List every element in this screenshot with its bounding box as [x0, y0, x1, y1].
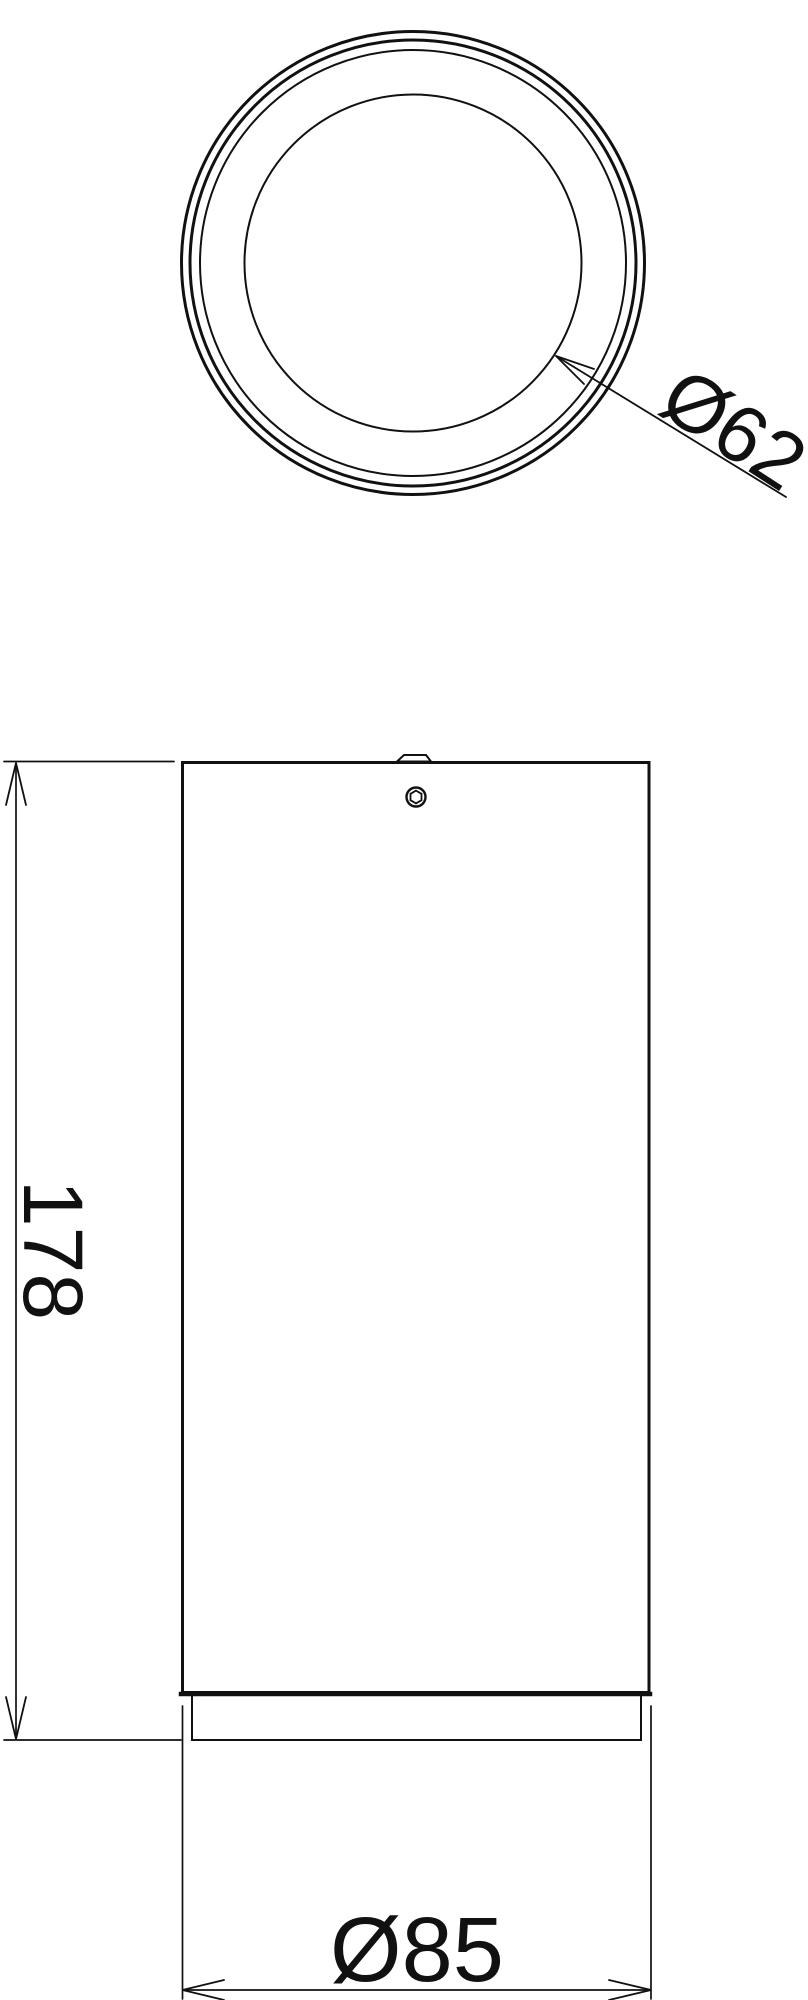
lens-diameter-label: Ø62	[646, 350, 808, 507]
outer-rim-circle	[182, 32, 645, 495]
lens-circle	[245, 95, 582, 432]
rim-circle-inner	[200, 50, 626, 476]
trim-ring	[192, 1697, 641, 1740]
body-outline	[183, 763, 650, 1693]
technical-drawing-sheet: Ø62 178	[0, 0, 808, 2000]
front-view	[181, 755, 650, 1740]
height-label: 178	[6, 1180, 100, 1320]
mounting-tab	[397, 755, 431, 762]
luminaire-dimension-drawing: Ø62 178	[0, 0, 808, 2000]
screw-hex-socket	[411, 791, 422, 804]
diameter-label: Ø85	[330, 1899, 504, 2000]
rim-circle-middle	[190, 40, 636, 486]
